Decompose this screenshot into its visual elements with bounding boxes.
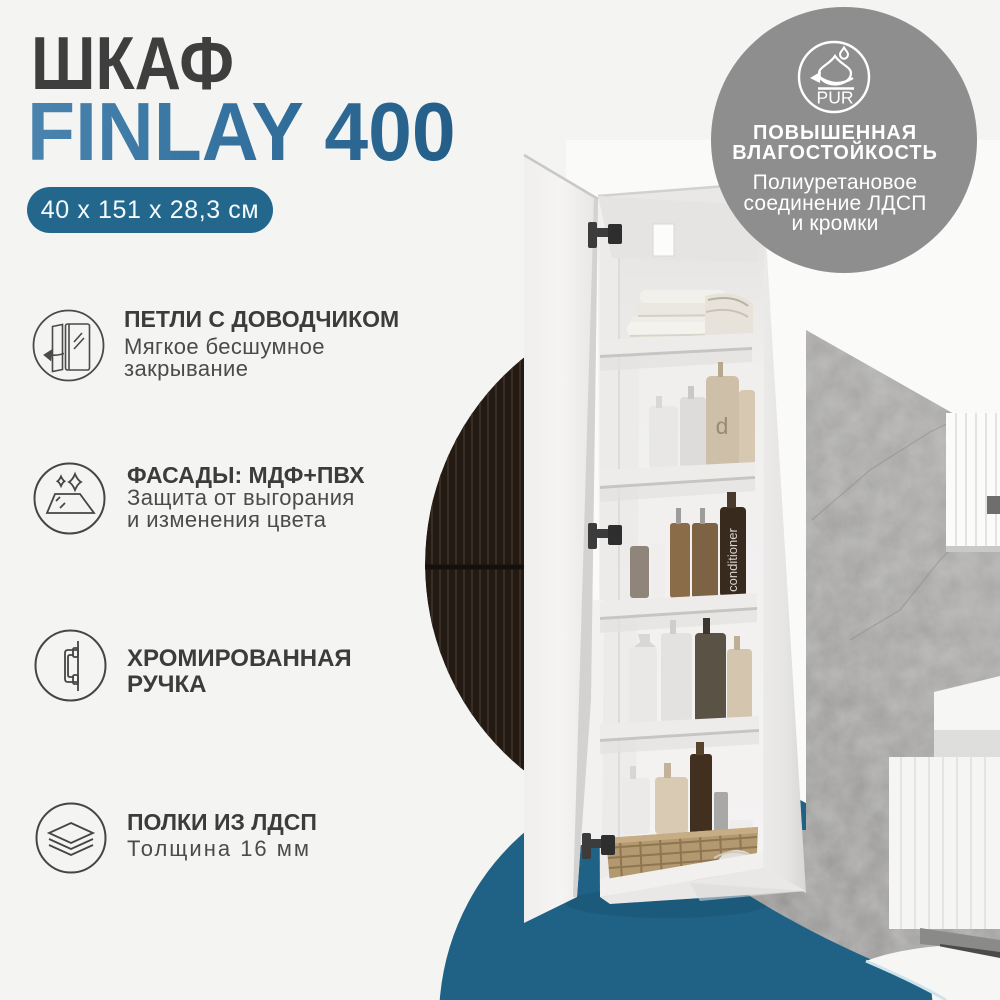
svg-text:d: d: [716, 413, 729, 439]
svg-text:conditioner: conditioner: [725, 528, 740, 592]
svg-text:PUR: PUR: [817, 88, 854, 108]
